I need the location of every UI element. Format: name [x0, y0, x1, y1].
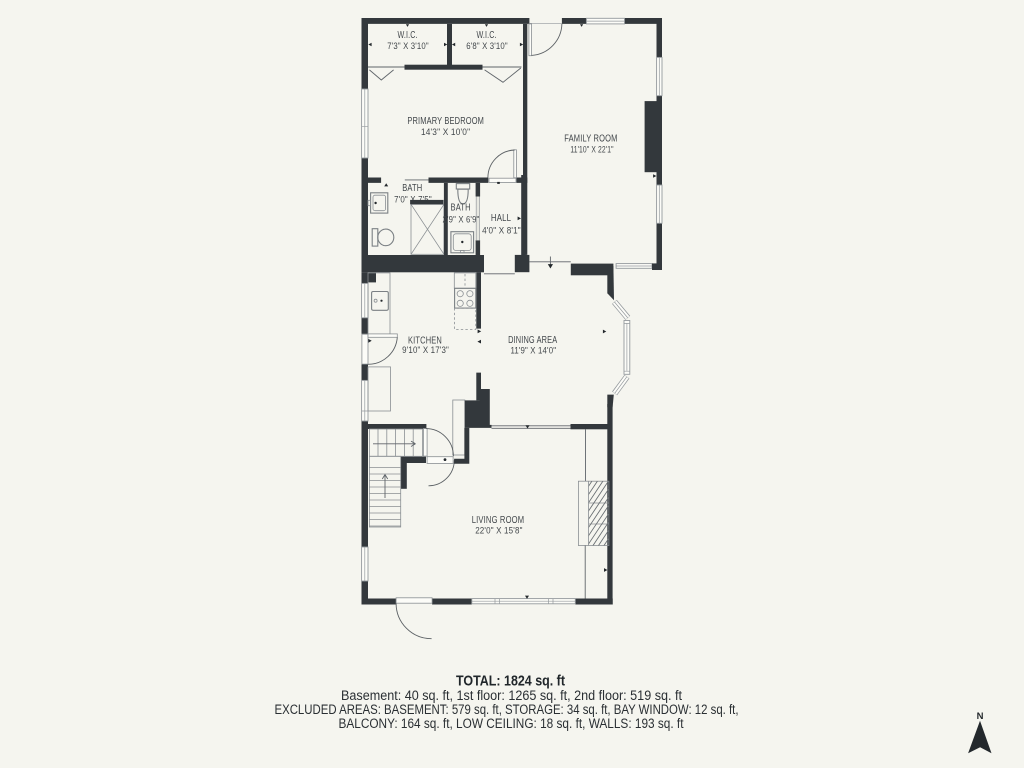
svg-text:Basement: 40 sq. ft, 1st floor: Basement: 40 sq. ft, 1st floor: 1265 sq.… — [341, 688, 682, 703]
svg-text:11'9" X 14'0": 11'9" X 14'0" — [510, 345, 556, 356]
svg-text:22'0" X 15'8": 22'0" X 15'8" — [475, 524, 522, 535]
svg-text:11'10" X 22'1": 11'10" X 22'1" — [570, 143, 613, 154]
svg-text:2'9" X 6'9": 2'9" X 6'9" — [443, 214, 480, 225]
svg-text:BATH: BATH — [451, 203, 471, 214]
svg-text:EXCLUDED AREAS: BASEMENT: 579: EXCLUDED AREAS: BASEMENT: 579 sq. ft, ST… — [275, 702, 739, 717]
svg-text:N: N — [977, 711, 984, 722]
svg-text:HALL: HALL — [491, 213, 511, 224]
svg-text:BALCONY: 164 sq. ft, LOW CEILI: BALCONY: 164 sq. ft, LOW CEILING: 18 sq.… — [339, 716, 684, 731]
svg-text:7'3" X 3'10": 7'3" X 3'10" — [387, 40, 429, 51]
svg-text:6'8" X 3'10": 6'8" X 3'10" — [466, 40, 508, 51]
svg-text:14'3" X 10'0": 14'3" X 10'0" — [421, 126, 470, 137]
svg-text:9'10" X 17'3": 9'10" X 17'3" — [402, 344, 449, 355]
svg-text:4'0" X 8'1": 4'0" X 8'1" — [482, 224, 521, 235]
